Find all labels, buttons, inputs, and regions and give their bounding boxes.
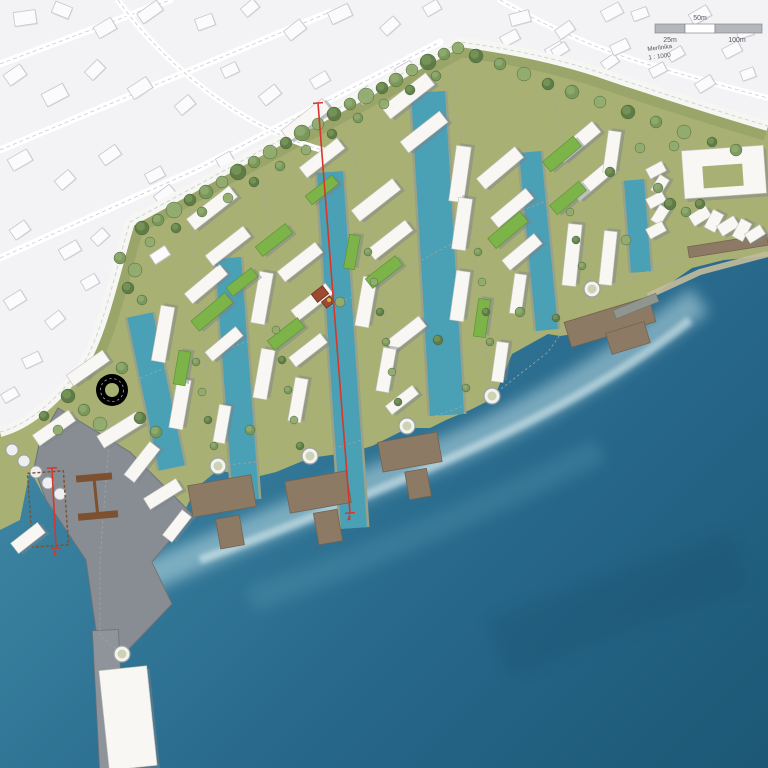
tree — [664, 198, 676, 210]
tree — [486, 338, 494, 346]
plaza-node — [210, 458, 226, 474]
plaza-node-center — [118, 650, 127, 659]
masterplan-canvas: 50m 25m 100m Merilnika 1 : 1000 — [0, 0, 768, 768]
tree-highlight — [167, 203, 177, 213]
tree-highlight — [94, 418, 103, 427]
tree — [621, 235, 631, 245]
tree — [594, 96, 606, 108]
tree — [184, 194, 196, 206]
tree — [433, 335, 443, 345]
scale-segment-50 — [685, 24, 715, 33]
tree — [216, 176, 228, 188]
tree-highlight — [231, 165, 241, 175]
tree — [669, 141, 679, 151]
tree-highlight — [117, 363, 124, 370]
tree-highlight — [193, 359, 198, 364]
tree — [406, 64, 418, 76]
tree-highlight — [146, 238, 152, 244]
tree — [635, 143, 645, 153]
tree — [389, 73, 403, 87]
tree-highlight — [40, 412, 46, 418]
tree-highlight — [595, 97, 602, 104]
plaza-node-center — [214, 462, 223, 471]
tree-highlight — [395, 399, 400, 404]
tree-highlight — [432, 72, 438, 78]
tree — [376, 308, 384, 316]
tree — [364, 248, 372, 256]
tree-highlight — [678, 126, 687, 135]
tree — [128, 263, 142, 277]
storage-silo — [6, 444, 18, 456]
tree — [312, 118, 324, 130]
tree-highlight — [123, 283, 130, 290]
tree — [605, 167, 615, 177]
roundabout — [96, 374, 128, 406]
tree — [249, 177, 259, 187]
tree — [192, 358, 200, 366]
tree-highlight — [291, 417, 296, 422]
tree-highlight — [297, 443, 302, 448]
tree — [681, 207, 691, 217]
tree-highlight — [302, 146, 308, 152]
wooden-pier — [216, 515, 245, 549]
pavilion-detail — [327, 298, 331, 302]
tree-highlight — [665, 199, 672, 206]
tree — [78, 404, 90, 416]
tree — [650, 116, 662, 128]
tree-highlight — [279, 357, 284, 362]
tree — [462, 384, 470, 392]
tree — [171, 223, 181, 233]
plaza-node-center — [588, 285, 597, 294]
tree — [474, 248, 482, 256]
tree-highlight — [136, 222, 145, 231]
tree-highlight — [553, 315, 558, 320]
tree — [137, 295, 147, 305]
water-channel — [634, 180, 641, 272]
tree-highlight — [54, 426, 60, 432]
water-channel — [428, 92, 447, 415]
tree-highlight — [336, 298, 342, 304]
residential-slab-building — [99, 666, 157, 768]
tree — [353, 113, 363, 123]
plaza-node-center — [403, 422, 412, 431]
tree-highlight — [115, 253, 122, 260]
masterplan-map: 50m 25m 100m Merilnika 1 : 1000 — [0, 0, 768, 768]
tree-highlight — [483, 309, 488, 314]
storage-silo — [54, 488, 66, 500]
plaza-node-center — [306, 452, 315, 461]
existing-building — [13, 10, 37, 27]
tree — [677, 125, 691, 139]
tree — [376, 82, 388, 94]
tree-highlight — [172, 224, 178, 230]
tree-highlight — [217, 177, 224, 184]
tree-highlight — [579, 263, 584, 268]
tree-highlight — [365, 249, 370, 254]
tree — [61, 389, 75, 403]
tree — [278, 356, 286, 364]
tree — [197, 207, 207, 217]
tree — [272, 326, 280, 334]
tree-highlight — [651, 117, 658, 124]
tree-highlight — [654, 184, 660, 190]
tree — [335, 297, 345, 307]
tree-highlight — [129, 264, 138, 273]
tree — [517, 67, 531, 81]
tree-highlight — [151, 427, 158, 434]
tree — [290, 416, 298, 424]
tree-highlight — [185, 195, 192, 202]
tree-highlight — [198, 208, 204, 214]
roundabout-island — [105, 383, 119, 397]
tree-highlight — [328, 130, 334, 136]
tree — [134, 412, 146, 424]
tree-highlight — [567, 209, 572, 214]
tree-highlight — [543, 79, 550, 86]
tree-highlight — [249, 157, 256, 164]
tree-highlight — [573, 237, 578, 242]
tree — [621, 105, 635, 119]
tree — [394, 398, 402, 406]
plaza-node — [399, 418, 415, 434]
tree-highlight — [205, 417, 210, 422]
tree — [515, 307, 525, 317]
tree-highlight — [670, 142, 676, 148]
tree — [494, 58, 506, 70]
tree — [707, 137, 717, 147]
tree — [542, 78, 554, 90]
tree-highlight — [487, 339, 492, 344]
tree — [199, 185, 213, 199]
wooden-pier — [405, 468, 432, 499]
tree — [204, 416, 212, 424]
courtyard — [702, 164, 743, 189]
tree — [294, 125, 310, 141]
tree-highlight — [264, 146, 273, 155]
tree-highlight — [479, 279, 484, 284]
tree-highlight — [421, 55, 431, 65]
tree — [198, 388, 206, 396]
tree-highlight — [475, 249, 480, 254]
tree — [93, 417, 107, 431]
tree — [552, 314, 560, 322]
tree-highlight — [135, 413, 142, 420]
tree-highlight — [276, 162, 282, 168]
tree-highlight — [354, 114, 360, 120]
tree-highlight — [200, 186, 209, 195]
plaza-node — [302, 448, 318, 464]
tree — [245, 425, 255, 435]
tree-highlight — [439, 49, 446, 56]
tree — [223, 193, 233, 203]
tree — [53, 425, 63, 435]
tree-highlight — [682, 208, 688, 214]
tree-highlight — [224, 194, 230, 200]
wooden-pier — [313, 509, 342, 545]
tree-highlight — [606, 168, 612, 174]
tree-highlight — [281, 138, 288, 145]
tree-highlight — [345, 99, 352, 106]
tree-highlight — [359, 89, 369, 99]
tree — [431, 71, 441, 81]
tree-highlight — [380, 100, 386, 106]
tree-highlight — [138, 296, 144, 302]
tree-highlight — [518, 68, 527, 77]
tree-highlight — [470, 50, 479, 59]
tree — [730, 144, 742, 156]
tree-highlight — [383, 339, 388, 344]
storage-silo — [18, 455, 30, 467]
courtyard — [702, 164, 743, 189]
tree — [150, 426, 162, 438]
tree — [578, 262, 586, 270]
tree-highlight — [62, 390, 71, 399]
tree-highlight — [246, 426, 252, 432]
tree — [210, 442, 218, 450]
tree-highlight — [79, 405, 86, 412]
wooden-pier — [405, 468, 432, 499]
scale-label-mid: 50m — [693, 15, 707, 22]
tree-highlight — [250, 178, 256, 184]
tree-highlight — [516, 308, 522, 314]
tree-highlight — [622, 236, 628, 242]
plaza-node — [484, 388, 500, 404]
tree — [114, 252, 126, 264]
tree — [327, 107, 341, 121]
tree — [122, 282, 134, 294]
tree-highlight — [731, 145, 738, 152]
tree — [152, 214, 164, 226]
tree — [572, 236, 580, 244]
tree-highlight — [389, 369, 394, 374]
tree — [248, 156, 260, 168]
tree-highlight — [153, 215, 160, 222]
tree — [39, 411, 49, 421]
tree — [166, 202, 182, 218]
tree — [405, 85, 415, 95]
plaza-node — [584, 281, 600, 297]
tree-highlight — [273, 327, 278, 332]
tree — [653, 183, 663, 193]
tree — [382, 338, 390, 346]
section-start-tick — [313, 103, 323, 104]
tree — [344, 98, 356, 110]
tree-highlight — [377, 309, 382, 314]
tree — [275, 161, 285, 171]
tree — [438, 48, 450, 60]
tree — [695, 199, 705, 209]
tree — [263, 145, 277, 159]
scale-segment-25 — [655, 24, 685, 33]
existing-building — [13, 9, 38, 27]
tree — [145, 237, 155, 247]
tree-highlight — [463, 385, 468, 390]
tree-highlight — [696, 200, 702, 206]
tree-highlight — [708, 138, 714, 144]
tree — [379, 99, 389, 109]
tree — [327, 129, 337, 139]
tree-highlight — [406, 86, 412, 92]
tree-highlight — [285, 387, 290, 392]
tree — [135, 221, 149, 235]
tree — [284, 386, 292, 394]
tree-highlight — [495, 59, 502, 66]
tree-highlight — [407, 65, 414, 72]
plaza-node-center — [488, 392, 497, 401]
tree-highlight — [622, 106, 631, 115]
tree-highlight — [371, 279, 376, 284]
tree-highlight — [434, 336, 440, 342]
tree-highlight — [453, 43, 460, 50]
tree-highlight — [390, 74, 399, 83]
plaza-node — [114, 646, 130, 662]
tree-highlight — [566, 86, 575, 95]
tree-highlight — [377, 83, 384, 90]
tree — [478, 278, 486, 286]
tree-highlight — [211, 443, 216, 448]
tree-highlight — [199, 389, 204, 394]
scale-segment-100 — [715, 24, 762, 33]
tree — [388, 368, 396, 376]
tree — [420, 54, 436, 70]
tree — [566, 208, 574, 216]
scale-label-right: 100m — [728, 37, 746, 44]
tree — [452, 42, 464, 54]
tree — [358, 88, 374, 104]
wooden-pier — [313, 509, 342, 545]
tree-highlight — [295, 126, 305, 136]
tree — [469, 49, 483, 63]
tree — [370, 278, 378, 286]
tree — [301, 145, 311, 155]
tree-highlight — [328, 108, 337, 117]
tree-highlight — [636, 144, 642, 150]
scale-caption: Merilnika 1 : 1000 — [647, 43, 674, 61]
tree — [230, 164, 246, 180]
tree — [280, 137, 292, 149]
tree — [116, 362, 128, 374]
wooden-pier — [216, 515, 245, 549]
tree — [296, 442, 304, 450]
tree — [482, 308, 490, 316]
tree — [565, 85, 579, 99]
